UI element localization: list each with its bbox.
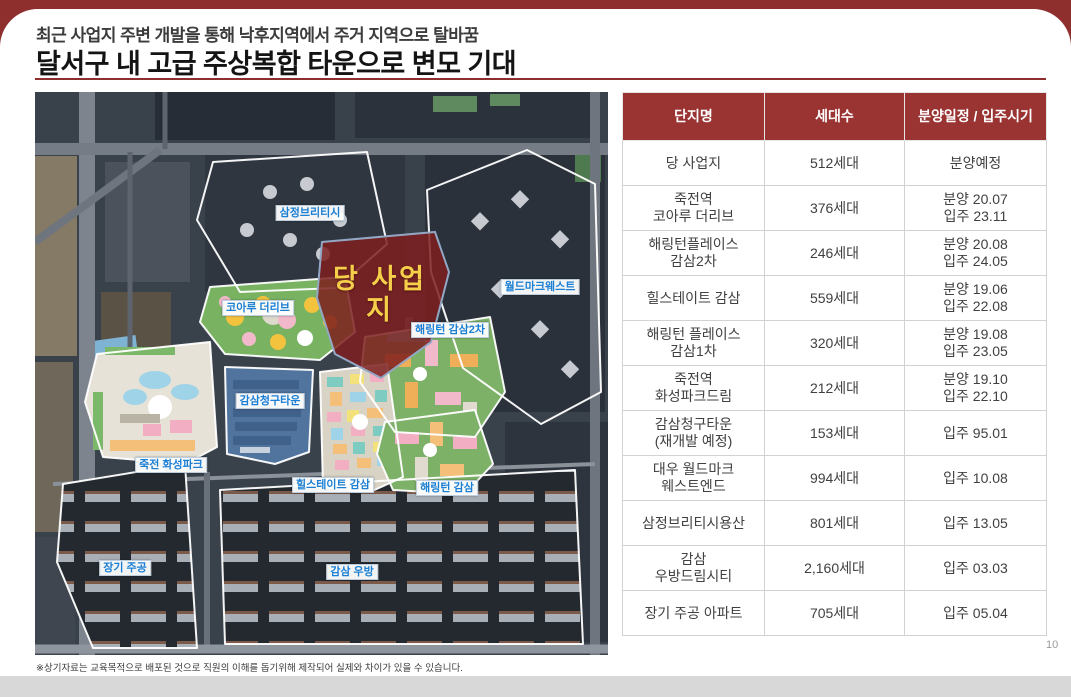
slide-title: 달서구 내 고급 주상복합 타운으로 변모 기대 xyxy=(36,42,516,81)
schedule-cell: 입주 95.01 xyxy=(905,411,1047,456)
header-schedule: 분양일정 / 입주시기 xyxy=(905,93,1047,141)
header-units: 세대수 xyxy=(765,93,905,141)
map-label-jukjeon-hwaseong-park: 죽전 화성파크 xyxy=(135,457,207,473)
table-row: 죽전역 코아루 더리브376세대분양 20.07 입주 23.11 xyxy=(623,186,1047,231)
page-number: 10 xyxy=(1046,639,1058,651)
map-label-gamsam-ubang: 감삼 우방 xyxy=(326,564,378,580)
units-cell: 2,160세대 xyxy=(765,546,905,591)
table-row: 삼정브리티시용산801세대입주 13.05 xyxy=(623,501,1047,546)
units-cell: 320세대 xyxy=(765,321,905,366)
map-label-harrington-gamsam-2cha: 해링턴 감삼2차 xyxy=(411,322,489,338)
table-row: 죽전역 화성파크드림212세대분양 19.10 입주 22.10 xyxy=(623,366,1047,411)
complex-name-cell: 죽전역 화성파크드림 xyxy=(623,366,765,411)
map-label-gamsam-cheonggu-town: 감삼청구타운 xyxy=(236,393,305,409)
gamsam-ubang-area xyxy=(220,470,583,644)
complex-name-cell: 감삼청구타운 (재개발 예정) xyxy=(623,411,765,456)
complex-name-cell: 죽전역 코아루 더리브 xyxy=(623,186,765,231)
header-complex-name: 단지명 xyxy=(623,93,765,141)
table-row: 힐스테이트 감삼559세대분양 19.06 입주 22.08 xyxy=(623,276,1047,321)
complex-name-cell: 감삼 우방드림시티 xyxy=(623,546,765,591)
table-row: 대우 월드마크 웨스트엔드994세대입주 10.08 xyxy=(623,456,1047,501)
complex-table: 단지명 세대수 분양일정 / 입주시기 당 사업지512세대분양예정죽전역 코아… xyxy=(622,92,1047,636)
subject-site-label: 당 사업 지 xyxy=(333,264,427,326)
map-label-hillstate-gamsam: 힐스테이트 감삼 xyxy=(292,477,374,493)
map-label-janggi-jugong: 장기 주공 xyxy=(99,560,151,576)
table-row: 해링턴플레이스 감삼2차246세대분양 20.08 입주 24.05 xyxy=(623,231,1047,276)
complex-name-cell: 힐스테이트 감삼 xyxy=(623,276,765,321)
schedule-cell: 분양 19.10 입주 22.10 xyxy=(905,366,1047,411)
schedule-cell: 분양 19.06 입주 22.08 xyxy=(905,276,1047,321)
units-cell: 512세대 xyxy=(765,141,905,186)
table-row: 장기 주공 아파트705세대입주 05.04 xyxy=(623,591,1047,636)
site-plan-hwaseong xyxy=(85,342,217,464)
complex-name-cell: 장기 주공 아파트 xyxy=(623,591,765,636)
schedule-cell: 입주 10.08 xyxy=(905,456,1047,501)
map-label-koaru-the-live: 코아루 더리브 xyxy=(222,300,294,316)
complex-name-cell: 삼정브리티시용산 xyxy=(623,501,765,546)
units-cell: 994세대 xyxy=(765,456,905,501)
schedule-cell: 분양예정 xyxy=(905,141,1047,186)
site-plan-cheonggu xyxy=(225,367,313,464)
complex-name-cell: 당 사업지 xyxy=(623,141,765,186)
table-row: 해링턴 플레이스 감삼1차320세대분양 19.08 입주 23.05 xyxy=(623,321,1047,366)
footnote: ※상기자료는 교육목적으로 배포된 것으로 직원의 이해를 돕기위해 제작되어 … xyxy=(36,660,463,674)
slide-page: 최근 사업지 주변 개발을 통해 낙후지역에서 주거 지역으로 탈바꿈 달서구 … xyxy=(0,0,1071,697)
title-underline xyxy=(35,78,1046,80)
map-label-worldmark-west: 월드마크웨스트 xyxy=(501,279,580,295)
schedule-cell: 입주 03.03 xyxy=(905,546,1047,591)
units-cell: 376세대 xyxy=(765,186,905,231)
complex-name-cell: 대우 월드마크 웨스트엔드 xyxy=(623,456,765,501)
table-row: 당 사업지512세대분양예정 xyxy=(623,141,1047,186)
units-cell: 246세대 xyxy=(765,231,905,276)
units-cell: 559세대 xyxy=(765,276,905,321)
map-label-samjeong-brities: 삼정브리티시 xyxy=(276,205,345,221)
map-label-harrington-gamsam: 해링턴 감삼 xyxy=(416,480,478,496)
complex-name-cell: 해링턴 플레이스 감삼1차 xyxy=(623,321,765,366)
schedule-cell: 분양 19.08 입주 23.05 xyxy=(905,321,1047,366)
schedule-cell: 분양 20.07 입주 23.11 xyxy=(905,186,1047,231)
units-cell: 705세대 xyxy=(765,591,905,636)
schedule-cell: 입주 05.04 xyxy=(905,591,1047,636)
units-cell: 153세대 xyxy=(765,411,905,456)
schedule-cell: 입주 13.05 xyxy=(905,501,1047,546)
units-cell: 801세대 xyxy=(765,501,905,546)
complex-table-body: 당 사업지512세대분양예정죽전역 코아루 더리브376세대분양 20.07 입… xyxy=(623,141,1047,636)
units-cell: 212세대 xyxy=(765,366,905,411)
slide-card: 최근 사업지 주변 개발을 통해 낙후지역에서 주거 지역으로 탈바꿈 달서구 … xyxy=(0,9,1071,676)
table-row: 감삼청구타운 (재개발 예정)153세대입주 95.01 xyxy=(623,411,1047,456)
complex-table-wrap: 단지명 세대수 분양일정 / 입주시기 당 사업지512세대분양예정죽전역 코아… xyxy=(622,92,1046,636)
table-row: 감삼 우방드림시티2,160세대입주 03.03 xyxy=(623,546,1047,591)
table-header-row: 단지명 세대수 분양일정 / 입주시기 xyxy=(623,93,1047,141)
satellite-map: 당 사업 지 삼정브리티시월드마크웨스트코아루 더리브해링턴 감삼2차감삼청구타… xyxy=(35,92,608,655)
complex-name-cell: 해링턴플레이스 감삼2차 xyxy=(623,231,765,276)
schedule-cell: 분양 20.08 입주 24.05 xyxy=(905,231,1047,276)
